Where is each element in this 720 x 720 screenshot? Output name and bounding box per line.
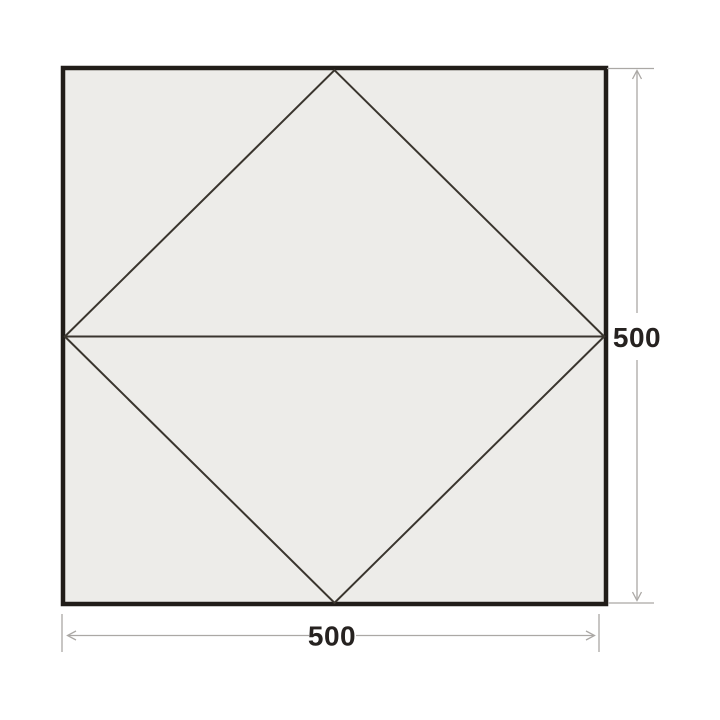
height-dimension-label: 500 — [613, 322, 661, 353]
width-dimension: 500 — [62, 614, 599, 652]
height-dimension: 500 — [607, 69, 661, 604]
diagram-canvas: 500 500 — [0, 0, 720, 720]
tarp-dimension-diagram: 500 500 — [0, 0, 720, 720]
width-dimension-label: 500 — [308, 621, 356, 652]
